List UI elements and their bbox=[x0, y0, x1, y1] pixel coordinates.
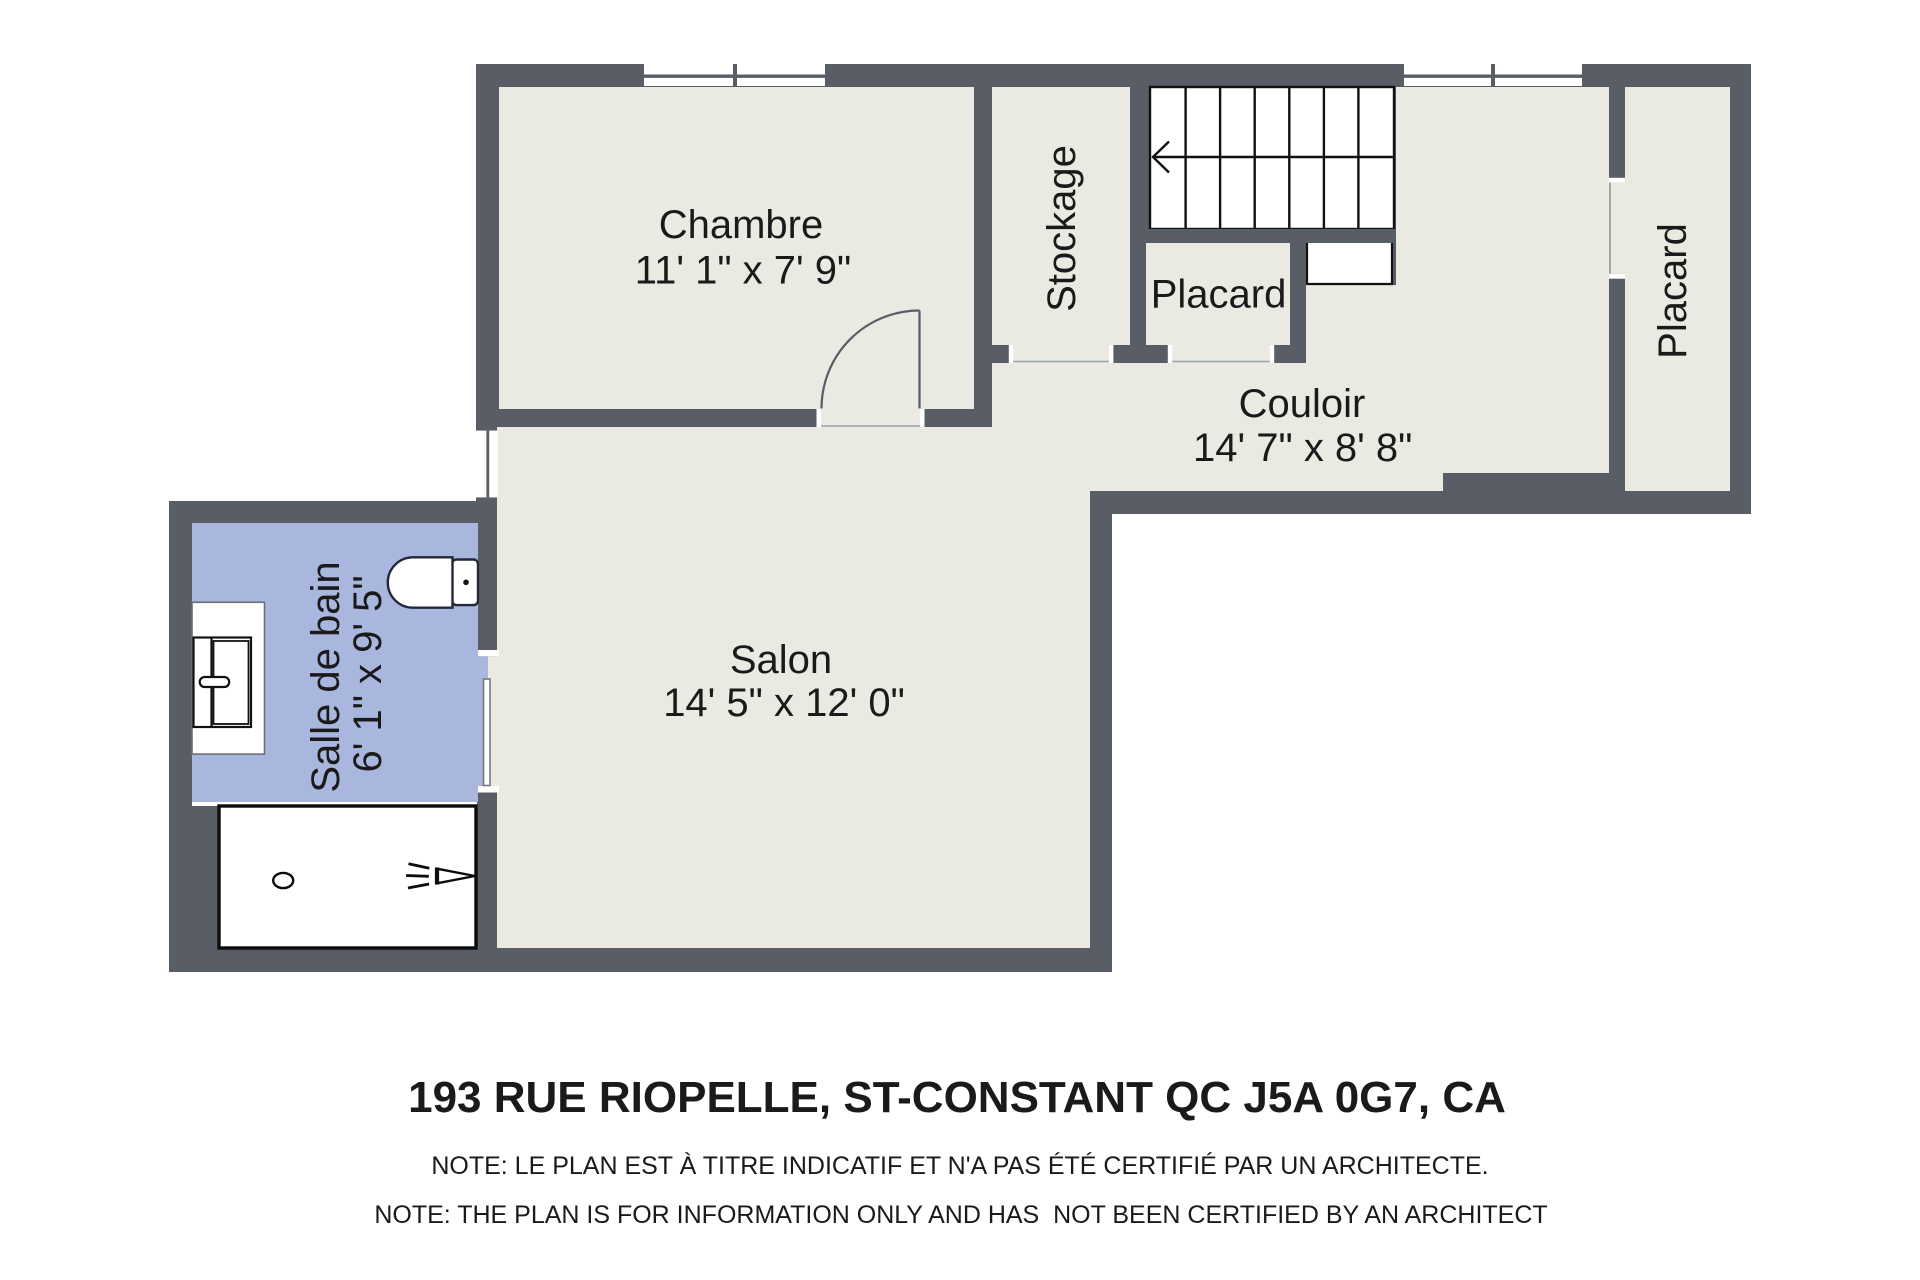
svg-text:NOTE: THE PLAN IS FOR INFORMAT: NOTE: THE PLAN IS FOR INFORMATION ONLY A… bbox=[374, 1201, 1547, 1229]
svg-text:Stockage: Stockage bbox=[1040, 145, 1084, 312]
svg-text:Placard: Placard bbox=[1651, 223, 1695, 359]
svg-text:Salon: Salon bbox=[730, 638, 832, 682]
svg-text:NOTE: LE PLAN EST À TITRE INDI: NOTE: LE PLAN EST À TITRE INDICATIF ET N… bbox=[431, 1151, 1488, 1180]
svg-text:193 RUE RIOPELLE, ST-CONSTANT: 193 RUE RIOPELLE, ST-CONSTANT QC J5A 0G7… bbox=[408, 1073, 1506, 1122]
svg-text:14' 7" x 8' 8": 14' 7" x 8' 8" bbox=[1193, 426, 1412, 470]
svg-text:11' 1" x 7' 9": 11' 1" x 7' 9" bbox=[635, 249, 851, 293]
svg-text:Salle de bain: Salle de bain bbox=[304, 561, 348, 792]
svg-text:Placard: Placard bbox=[1151, 273, 1287, 317]
svg-text:14' 5" x 12' 0": 14' 5" x 12' 0" bbox=[663, 681, 905, 725]
svg-text:Chambre: Chambre bbox=[659, 203, 824, 247]
svg-text:6' 1" x 9' 5": 6' 1" x 9' 5" bbox=[346, 575, 390, 772]
svg-text:Couloir: Couloir bbox=[1239, 382, 1366, 426]
